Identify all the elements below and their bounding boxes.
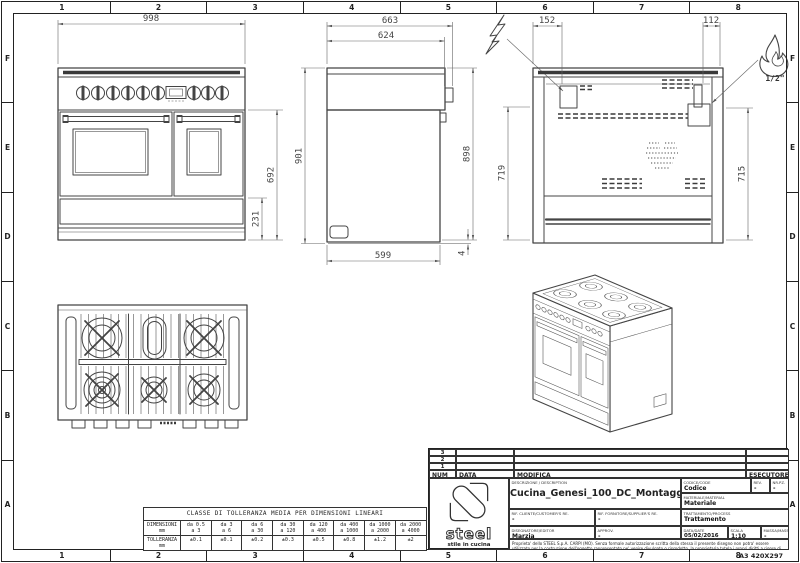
revision-row-date bbox=[456, 463, 514, 470]
top-view bbox=[58, 305, 247, 428]
gas-leader-line bbox=[712, 60, 758, 103]
front-knob-row bbox=[77, 87, 229, 102]
front-storage-drawer bbox=[58, 199, 245, 232]
sheet-format-label: A3 420X297 bbox=[739, 552, 783, 560]
burner-center-bottom bbox=[141, 377, 167, 403]
revision-row-executor bbox=[746, 463, 789, 470]
revision-row-executor bbox=[746, 456, 789, 463]
tolerance-value: ±0.1 bbox=[180, 535, 211, 550]
tolerance-range: da 30a 120 bbox=[272, 520, 303, 535]
svg-text:599: 599 bbox=[375, 251, 391, 261]
dim-back-height-left: 719 bbox=[498, 107, 531, 240]
burner-right-bottom bbox=[188, 374, 220, 406]
side-view: 663 624 901 898 bbox=[295, 15, 564, 265]
grid-row-label: B bbox=[2, 370, 13, 459]
steel-logo-tagline: stile in cucina bbox=[430, 542, 508, 549]
dim-side-depth-base: 599 bbox=[327, 245, 440, 265]
grid-row-label: F bbox=[2, 14, 13, 102]
tolerance-range: da 120a 400 bbox=[303, 520, 334, 535]
revision-row-num: 2 bbox=[429, 456, 456, 463]
dim-side-height-total: 901 bbox=[295, 68, 326, 244]
back-view: 152 112 719 715 bbox=[498, 16, 788, 243]
grid-row-label: D bbox=[787, 192, 798, 281]
back-perforation-pattern bbox=[646, 143, 678, 168]
tolerance-value: ±0.1 bbox=[211, 535, 242, 550]
materiale-cell: MATERIALE/MATERIALMateriale bbox=[681, 493, 789, 509]
tolerance-range: da 2000a 4000 bbox=[395, 520, 426, 535]
approv-cell: APPROV.- bbox=[595, 526, 681, 539]
revision-row-num: 3 bbox=[429, 449, 456, 456]
grid-col-label: 3 bbox=[206, 550, 303, 561]
dim-front-drawer-height: 231 bbox=[248, 198, 267, 240]
description-cell: DESCRIZIONE / DESCRIPTION Cucina_Genesi_… bbox=[509, 478, 681, 509]
mass-cell: MASSA/MASS kg- bbox=[761, 526, 789, 539]
electric-junction-box bbox=[560, 86, 577, 108]
front-right-oven-door bbox=[174, 112, 243, 196]
grid-col-label: 5 bbox=[400, 550, 497, 561]
burner-center-top-oval bbox=[143, 317, 166, 359]
revision-header-num: NUM bbox=[429, 470, 456, 478]
grid-row-label: E bbox=[787, 102, 798, 191]
svg-text:901: 901 bbox=[295, 148, 305, 164]
svg-text:231: 231 bbox=[252, 211, 262, 227]
revision-row-date bbox=[456, 449, 514, 456]
tolerance-range: da 1000a 2000 bbox=[364, 520, 395, 535]
top-view-knob-strip bbox=[72, 420, 238, 428]
grid-col-label: 2 bbox=[110, 2, 207, 13]
burner-left-bottom-wok bbox=[84, 372, 120, 408]
steel-logo-brand: steel bbox=[430, 527, 508, 542]
revision-row-change bbox=[514, 463, 746, 470]
grid-band-bottom: 1 2 3 4 5 6 7 8 bbox=[14, 550, 786, 561]
revision-row-change bbox=[514, 449, 746, 456]
tolerance-value: ±0.5 bbox=[303, 535, 334, 550]
gas-size-label: 1/2" bbox=[765, 74, 784, 83]
nrpz-cell: NR.PZ.- bbox=[770, 478, 789, 493]
grid-row-label: E bbox=[2, 102, 13, 191]
revision-header-modifica: MODIFICA bbox=[514, 470, 746, 478]
steel-logo-emblem bbox=[449, 482, 489, 522]
side-foot bbox=[330, 226, 348, 238]
tolerance-dim-label: DIMENSIONImm bbox=[144, 520, 180, 535]
svg-text:998: 998 bbox=[143, 14, 159, 24]
drawing-sheet: 998 692 231 bbox=[0, 0, 800, 563]
svg-text:112: 112 bbox=[703, 16, 719, 26]
grid-band-top: 1 2 3 4 5 6 7 8 bbox=[14, 2, 786, 13]
burner-left-top bbox=[82, 318, 122, 358]
tolerance-value: ±0.2 bbox=[241, 535, 272, 550]
revision-row-date bbox=[456, 456, 514, 463]
svg-text:715: 715 bbox=[738, 166, 748, 182]
dim-side-foot-gap: 4 bbox=[458, 229, 469, 256]
grid-col-label: 1 bbox=[14, 550, 110, 561]
svg-text:898: 898 bbox=[463, 146, 473, 162]
isometric-view bbox=[533, 275, 672, 432]
dim-front-width: 998 bbox=[58, 14, 245, 64]
rif-fornitore-cell: RIF. FORNITORE/SUPPLIER'S RE.- bbox=[595, 509, 681, 526]
back-vents bbox=[558, 80, 707, 188]
tolerance-value: ±0.8 bbox=[333, 535, 364, 550]
tolerance-tol-label: TOLLERANZAmm bbox=[144, 535, 180, 550]
title-block: 3 2 1 NUM DATA MODIFICA ESECUTORE steel … bbox=[428, 448, 788, 549]
grid-col-label: 2 bbox=[110, 550, 207, 561]
grid-row-label: F bbox=[787, 14, 798, 102]
rif-cliente-cell: RIF. CLIENTE/CUSTOMER'S RE.- bbox=[509, 509, 595, 526]
grid-row-label: A bbox=[2, 460, 13, 549]
tolerance-value: ±2 bbox=[395, 535, 426, 550]
disegnatore-cell: DISEGNATORE/EDITORMarzia bbox=[509, 526, 595, 539]
grid-col-label: 6 bbox=[496, 2, 593, 13]
grid-col-label: 6 bbox=[496, 550, 593, 561]
grid-col-label: 4 bbox=[303, 2, 400, 13]
revision-row-num: 1 bbox=[429, 463, 456, 470]
dim-side-depth-total: 663 bbox=[327, 16, 453, 86]
tolerance-range: da 0.5a 3 bbox=[180, 520, 211, 535]
scale-cell: SCALA1:10 bbox=[728, 526, 761, 539]
electric-leader-line bbox=[507, 39, 563, 91]
svg-text:692: 692 bbox=[267, 167, 277, 183]
grid-col-label: 3 bbox=[206, 2, 303, 13]
dim-side-depth-body: 624 bbox=[327, 31, 445, 86]
grid-row-label: B bbox=[787, 370, 798, 459]
codice-cell: CODICE/CODECodice bbox=[681, 478, 751, 493]
gas-flame-icon bbox=[760, 35, 788, 77]
front-display bbox=[166, 87, 186, 99]
grid-row-label: D bbox=[2, 192, 13, 281]
drawing-title: Cucina_Genesi_100_DC_Montaggio bbox=[510, 488, 680, 499]
tolerance-table-title: CLASSE DI TOLLERANZA MEDIA PER DIMENSION… bbox=[144, 508, 426, 520]
revision-header-data: DATA bbox=[456, 470, 514, 478]
front-view: 998 692 231 bbox=[58, 14, 283, 240]
grid-row-label: C bbox=[787, 281, 798, 370]
tolerance-value: ±0.3 bbox=[272, 535, 303, 550]
tolerance-table: CLASSE DI TOLLERANZA MEDIA PER DIMENSION… bbox=[143, 507, 427, 551]
grid-col-label: 1 bbox=[14, 2, 110, 13]
svg-text:152: 152 bbox=[539, 16, 555, 26]
dim-side-height-body: 898 bbox=[442, 68, 477, 240]
svg-text:624: 624 bbox=[378, 31, 394, 41]
tolerance-value: ±1.2 bbox=[364, 535, 395, 550]
grid-row-label: C bbox=[2, 281, 13, 370]
tolerance-range: da 400a 1000 bbox=[333, 520, 364, 535]
svg-text:719: 719 bbox=[498, 165, 508, 181]
electric-connection-icon bbox=[486, 15, 505, 54]
dim-back-height-right: 715 bbox=[726, 108, 753, 240]
legal-notice: Proprieta' dello STEEL S.p.A. CARPI (MO)… bbox=[509, 539, 789, 550]
grid-band-left: F E D C B A bbox=[2, 14, 13, 549]
svg-text:663: 663 bbox=[382, 16, 398, 26]
grid-col-label: 5 bbox=[400, 2, 497, 13]
grid-col-label: 8 bbox=[689, 2, 786, 13]
front-left-oven-door bbox=[60, 112, 172, 196]
steel-logo: steel stile in cucina bbox=[429, 478, 509, 550]
revision-row-executor bbox=[746, 449, 789, 456]
grid-col-label: 7 bbox=[593, 2, 690, 13]
grid-col-label: 7 bbox=[593, 550, 690, 561]
date-cell: DATA/DATE05/02/2016 bbox=[681, 526, 728, 539]
trattamento-cell: TRATTAMENTO/PROCESSTrattamento bbox=[681, 509, 789, 526]
tolerance-range: da 6a 30 bbox=[241, 520, 272, 535]
grid-col-label: 4 bbox=[303, 550, 400, 561]
rev-cell: REV.- bbox=[751, 478, 770, 493]
revision-row-change bbox=[514, 456, 746, 463]
burner-right-top bbox=[184, 318, 224, 358]
svg-text:4: 4 bbox=[458, 251, 468, 256]
tolerance-range: da 3a 6 bbox=[211, 520, 242, 535]
revision-header-esecutore: ESECUTORE bbox=[746, 470, 789, 478]
